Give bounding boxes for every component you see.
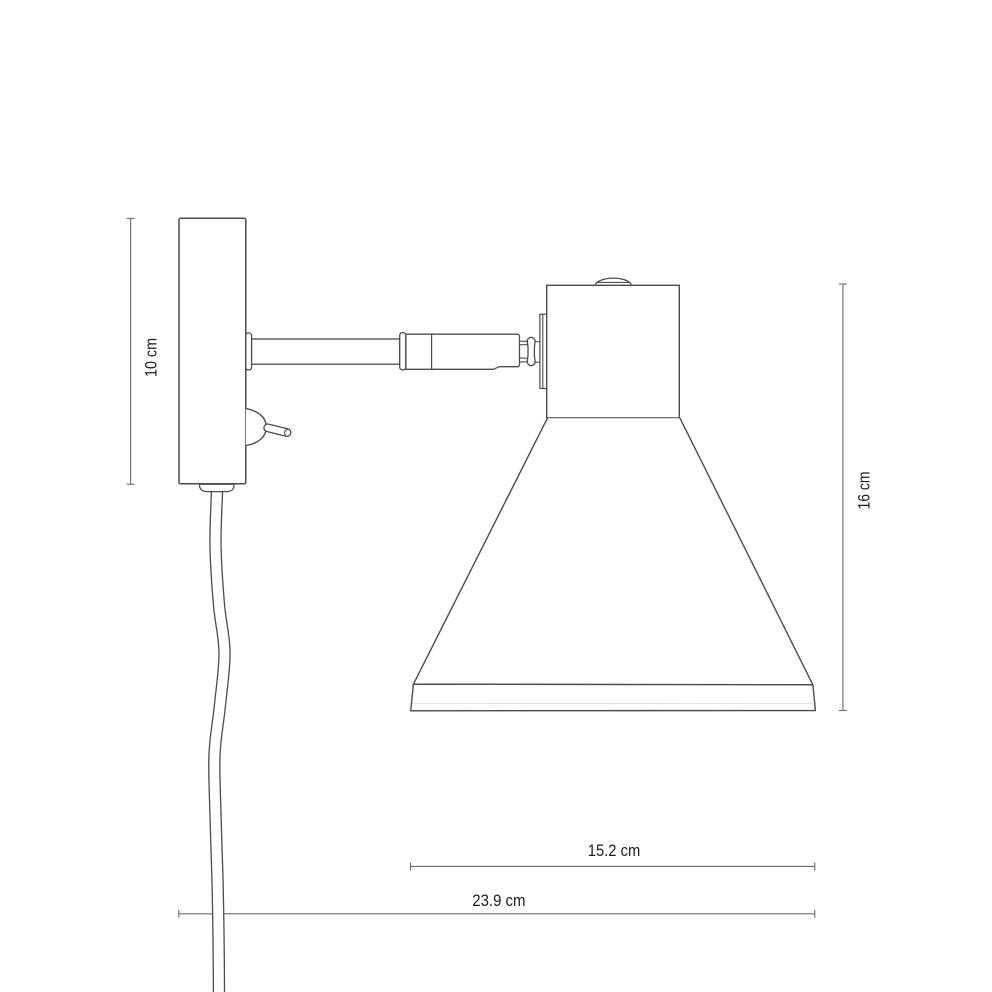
svg-text:10 cm: 10 cm (141, 338, 160, 377)
svg-text:16 cm: 16 cm (855, 472, 874, 510)
svg-text:15.2 cm: 15.2 cm (588, 841, 641, 860)
svg-text:23.9 cm: 23.9 cm (472, 891, 525, 910)
